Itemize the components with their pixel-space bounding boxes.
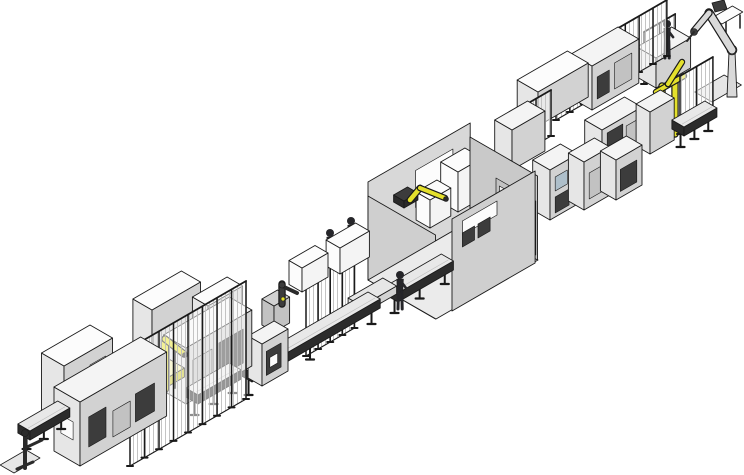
- assembly-line-isometric-drawing: [0, 0, 744, 475]
- turntable-robot-marker: [281, 297, 285, 301]
- mid-cabinet: [248, 321, 288, 386]
- assembly-line-cad-screenshot: [0, 0, 744, 475]
- pedestal-robot-forearm: [694, 13, 709, 31]
- loader-robot-head: [22, 430, 29, 437]
- loader-robot-arm: [25, 440, 42, 448]
- pedestal-robot-column: [727, 52, 737, 97]
- turntable-robot-joint: [279, 282, 285, 288]
- room-robot-wrist: [444, 197, 449, 202]
- scene-root: [0, 0, 743, 473]
